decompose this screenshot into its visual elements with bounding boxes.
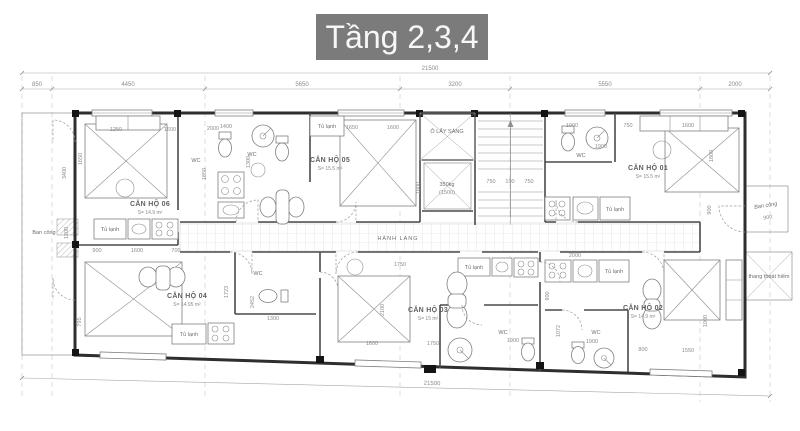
dim-35: 1072 — [556, 325, 562, 337]
dim-34: 900 — [545, 291, 551, 300]
dim-2: 1400 — [220, 124, 232, 130]
wc-label-u01: WC — [576, 153, 585, 159]
dim-32: 800 — [638, 347, 647, 353]
corridor-label: HÀNH LANG — [377, 235, 418, 242]
escape-stair-label: thang thoát hiểm — [749, 273, 790, 280]
dim-19: 1650 — [78, 153, 84, 165]
dim-13: 900 — [707, 205, 713, 214]
dim-21: 2100 — [380, 304, 386, 316]
dim-10: 1600 — [682, 123, 694, 129]
dim-26: 2452 — [250, 296, 256, 308]
room-name-canho-06: CĂN HỘ 06 — [130, 199, 170, 208]
dim-25: 1300 — [267, 316, 279, 322]
dim-31: 1550 — [682, 348, 694, 354]
dim-11: 1900 — [595, 144, 607, 150]
dim-15: 1600 — [131, 248, 143, 254]
drawing-title: Tầng 2,3,4 — [316, 14, 488, 60]
dim-9: 750 — [623, 123, 632, 129]
dim-24: 1900 — [507, 338, 519, 344]
balcony-right-label: Ban công — [754, 201, 779, 211]
dim-27: 1723 — [224, 286, 230, 298]
room-name-canho-03: CĂN HỘ 03 — [408, 305, 448, 314]
room-area-canho-05: S= 15.5 m² — [318, 166, 343, 172]
axis-dim-1: 850 — [32, 82, 43, 88]
elevator: 350kg (1500) — [424, 163, 471, 209]
dim-12: 1800 — [709, 150, 715, 162]
balcony-left-label: Ban công — [32, 230, 55, 236]
dim-balcony-right: 900 — [763, 214, 773, 221]
dim-36: 1900 — [586, 339, 598, 345]
axis-dim-5: 5550 — [598, 82, 612, 88]
room-name-canho-05: CĂN HỘ 05 — [310, 155, 350, 164]
dim-4: 1300 — [246, 156, 252, 168]
room-area-canho-03: S= 15 m² — [418, 316, 439, 322]
elevator-capacity-label: 350kg — [440, 182, 455, 188]
dim-overall-top: 21500 — [422, 66, 439, 72]
floor-plan-page: Tầng 2,3,4 21500 850 4450 5650 3200 5550… — [0, 0, 800, 431]
dim-overall-bottom: 21500 — [424, 381, 441, 387]
dim-3: 2000 — [207, 126, 219, 132]
stair-dim-2: 100 — [505, 179, 514, 185]
room-area-canho-04: S= 14.95 m² — [173, 302, 201, 308]
dim-33: 2000 — [569, 253, 581, 259]
dim-28: 795 — [77, 317, 83, 326]
dim-8: 1000 — [566, 123, 578, 129]
room-area-canho-06: S= 14.9 m² — [138, 210, 163, 216]
room-area-canho-02: S= 14.9 m² — [631, 314, 656, 320]
dim-6: 1600 — [387, 125, 399, 131]
light-well-label: Ô LẤY SÁNG — [430, 128, 463, 135]
fridge-label-u05: Tủ lạnh — [318, 123, 336, 130]
dim-23: 1750 — [427, 341, 439, 347]
dim-22: 1600 — [366, 341, 378, 347]
dim-14: 900 — [92, 248, 101, 254]
wc-label-u03: WC — [498, 330, 507, 336]
room-name-canho-01: CĂN HỘ 01 — [628, 163, 668, 172]
staircase: 750 100 750 — [478, 113, 543, 225]
room-name-canho-04: CĂN HỘ 04 — [167, 291, 207, 300]
axis-dim-4: 3200 — [448, 82, 462, 88]
dim-0: 1250 — [110, 127, 122, 133]
dim-5: 1650 — [346, 125, 358, 131]
fridge-label-u01: Tủ lạnh — [606, 206, 624, 213]
floor-plan-drawing: Tầng 2,3,4 21500 850 4450 5650 3200 5550… — [0, 0, 800, 431]
wc-label-u06: WC — [191, 158, 200, 164]
escape-stair: thang thoát hiểm — [745, 252, 792, 300]
dim-7: 1850 — [202, 168, 208, 180]
dim-16: 700 — [171, 248, 180, 254]
page-title: Tầng 2,3,4 — [326, 19, 479, 55]
dim-37: 1000 — [703, 315, 709, 327]
wc-label-u04: WC — [253, 271, 262, 277]
corridor: HÀNH LANG — [180, 223, 700, 251]
dim-20: 1750 — [394, 262, 406, 268]
fridge-label-u04: Tủ lạnh — [180, 331, 198, 338]
wc-label-u02: WC — [591, 330, 600, 336]
axis-dim-6: 2000 — [728, 82, 742, 88]
fridge-label-u03: Tủ lạnh — [465, 264, 483, 271]
axis-dim-3: 5650 — [295, 82, 309, 88]
light-well: Ô LẤY SÁNG — [420, 113, 475, 160]
room-area-canho-01: S= 15.5 m² — [636, 174, 661, 180]
fridge-label-u02: Tủ lạnh — [605, 268, 623, 275]
dim-1: 1600 — [164, 127, 176, 133]
stair-dim-1: 750 — [486, 179, 495, 185]
dim-30: 1600 — [416, 182, 422, 194]
dim-17: 1200 — [64, 227, 70, 239]
axis-dim-2: 4450 — [121, 82, 135, 88]
stair-dim-3: 750 — [524, 179, 533, 185]
room-name-canho-02: CĂN HỘ 02 — [623, 303, 663, 312]
elevator-size-label: (1500) — [439, 190, 455, 196]
fridge-label-u06: Tủ lạnh — [101, 226, 119, 233]
dim-18: 3400 — [62, 167, 68, 179]
balcony-right: Ban công 900 — [745, 186, 788, 232]
